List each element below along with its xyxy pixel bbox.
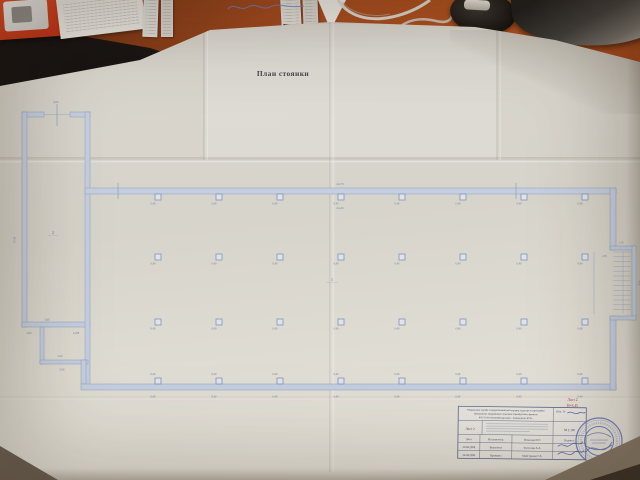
column-dim-label: 0,40: [273, 396, 278, 399]
column-dim-label: 0,40: [456, 396, 461, 399]
column-grid: 0,400,400,400,400,400,400,400,400,400,40…: [151, 194, 589, 399]
column: [277, 319, 283, 325]
column-dim-label: 0,40: [578, 396, 583, 399]
col-header-signature: Подпись: [564, 439, 575, 442]
column: [521, 378, 527, 384]
column: [399, 194, 405, 200]
column-dim-label: 0,40: [517, 373, 522, 376]
column: [216, 194, 222, 200]
wall: [610, 188, 616, 250]
column-dim-label: 0,40: [334, 373, 339, 376]
column: [582, 254, 588, 260]
wall: [610, 316, 636, 320]
column: [216, 319, 222, 325]
wall: [85, 188, 616, 194]
column: [155, 194, 161, 200]
column-dim-label: 0,40: [395, 373, 400, 376]
col-header-name: Фамилия И.О.: [524, 439, 541, 442]
stamp-text-line: [590, 440, 608, 441]
column: [338, 194, 344, 200]
column: [460, 194, 466, 200]
row2-role: Проверил: [490, 454, 502, 457]
annex-walls: [22, 104, 90, 388]
row1-date: 26.04.2008: [463, 446, 476, 449]
wall: [81, 360, 86, 384]
column-dim-label: 0,40: [212, 396, 217, 399]
column-dim-label: 0,40: [578, 263, 583, 266]
dim-label: 44,26: [336, 206, 344, 211]
plan-sheet: План стоянки: [0, 0, 640, 480]
column-dim-label: 0,40: [273, 263, 278, 266]
stamp-text-line: [587, 433, 611, 437]
column-dim-label: 0,40: [212, 328, 217, 331]
column: [521, 254, 527, 260]
floor-plan-drawing: План стоянки: [0, 0, 640, 480]
wall: [22, 112, 27, 327]
column: [155, 254, 161, 260]
column-dim-label: 0,40: [395, 263, 400, 266]
column: [338, 378, 344, 384]
column: [216, 254, 222, 260]
column: [277, 194, 283, 200]
column-dim-label: 0,40: [273, 373, 278, 376]
dim-label: 3,56: [60, 369, 65, 372]
wall: [85, 112, 90, 388]
wall: [40, 327, 44, 364]
column-dim-label: 0,40: [151, 328, 156, 331]
column: [460, 378, 466, 384]
column: [155, 319, 161, 325]
column: [399, 319, 405, 325]
stamp-text-line: [592, 443, 606, 444]
wall: [610, 316, 616, 390]
sheet-bottom-shadow: [0, 468, 640, 480]
sheet-number-cell: Лист 2: [466, 427, 476, 431]
column: [216, 378, 222, 384]
col-header-role: Исполнитель: [488, 438, 504, 441]
column-dim-label: 0,40: [395, 328, 400, 331]
column: [582, 194, 588, 200]
column-dim-label: 0,40: [151, 203, 156, 206]
inventory-number-note: Инв. №: [555, 409, 566, 413]
column: [277, 378, 283, 384]
column-dim-label: 0,40: [212, 373, 217, 376]
column-dim-label: 0,40: [151, 263, 156, 266]
dim-label: 5,60: [45, 319, 50, 322]
column-dim-label: 0,40: [212, 203, 217, 206]
column: [399, 254, 405, 260]
column-dim-label: 0,40: [334, 396, 339, 399]
row1-name: Фетисова А.А.: [524, 447, 542, 450]
column-dim-label: 0,40: [395, 203, 400, 206]
column: [338, 319, 344, 325]
column: [155, 378, 161, 384]
stair-steps: [613, 252, 631, 310]
wall: [22, 322, 90, 327]
dim-label: 44,70: [336, 182, 344, 187]
column-dim-label: 0,40: [273, 203, 278, 206]
column-dim-label: 0,40: [273, 328, 278, 331]
column: [338, 254, 344, 260]
column-dim-label: 0,40: [151, 373, 156, 376]
row2-name: Майстренко Г.А.: [522, 455, 542, 458]
col-header-date: Дата: [466, 438, 472, 441]
row1-role: Выполнил: [490, 446, 503, 449]
drawing-title: План стоянки: [257, 69, 310, 78]
column-dim-label: 0,40: [334, 263, 339, 266]
column-dim-label: 0,40: [151, 396, 156, 399]
room-label: 2: [52, 230, 55, 235]
column-dim-label: 0,40: [212, 263, 217, 266]
column: [521, 194, 527, 200]
pen-mark: [228, 5, 304, 9]
dim-label: 12,08: [73, 332, 80, 335]
dim-label: 1,38: [602, 255, 607, 258]
hall-walls: [81, 183, 616, 390]
red-sheet-note: Лист 2: [567, 398, 577, 402]
dim-label: 17,58: [14, 236, 17, 243]
column-dim-label: 0,40: [456, 373, 461, 376]
column: [582, 319, 588, 325]
dim-label: 5,04: [58, 355, 63, 358]
room-label: 1: [331, 277, 334, 282]
column: [399, 378, 405, 384]
row2-date: 26.04.2008: [462, 454, 475, 457]
dim-label: 6,06: [54, 101, 59, 104]
wall: [81, 384, 616, 390]
column-dim-label: 0,40: [578, 328, 583, 331]
wall: [632, 246, 636, 320]
column-dim-label: 0,40: [456, 263, 461, 266]
column-dim-label: 0,40: [578, 373, 583, 376]
column-dim-label: 0,40: [334, 328, 339, 331]
column-dim-label: 0,40: [395, 396, 400, 399]
title-block: Федеральная служба государственной регис…: [458, 406, 587, 460]
scale-cell: М 1:100: [564, 428, 575, 432]
column: [460, 319, 466, 325]
column-dim-label: 0,40: [578, 203, 583, 206]
column: [582, 378, 588, 384]
column: [521, 319, 527, 325]
dim-label: 1,79: [619, 242, 624, 245]
column-dim-label: 0,40: [517, 328, 522, 331]
column-dim-label: 0,40: [517, 396, 522, 399]
small-room-walls: [40, 327, 88, 384]
column: [460, 254, 466, 260]
column-dim-label: 0,40: [456, 203, 461, 206]
column-dim-label: 0,40: [517, 203, 522, 206]
column-dim-label: 0,40: [456, 328, 461, 331]
staircase: [594, 246, 636, 320]
dim-label: 2,60: [27, 332, 32, 335]
photo-scene: План стоянки: [0, 0, 640, 480]
column: [277, 254, 283, 260]
column-dim-label: 0,40: [517, 263, 522, 266]
